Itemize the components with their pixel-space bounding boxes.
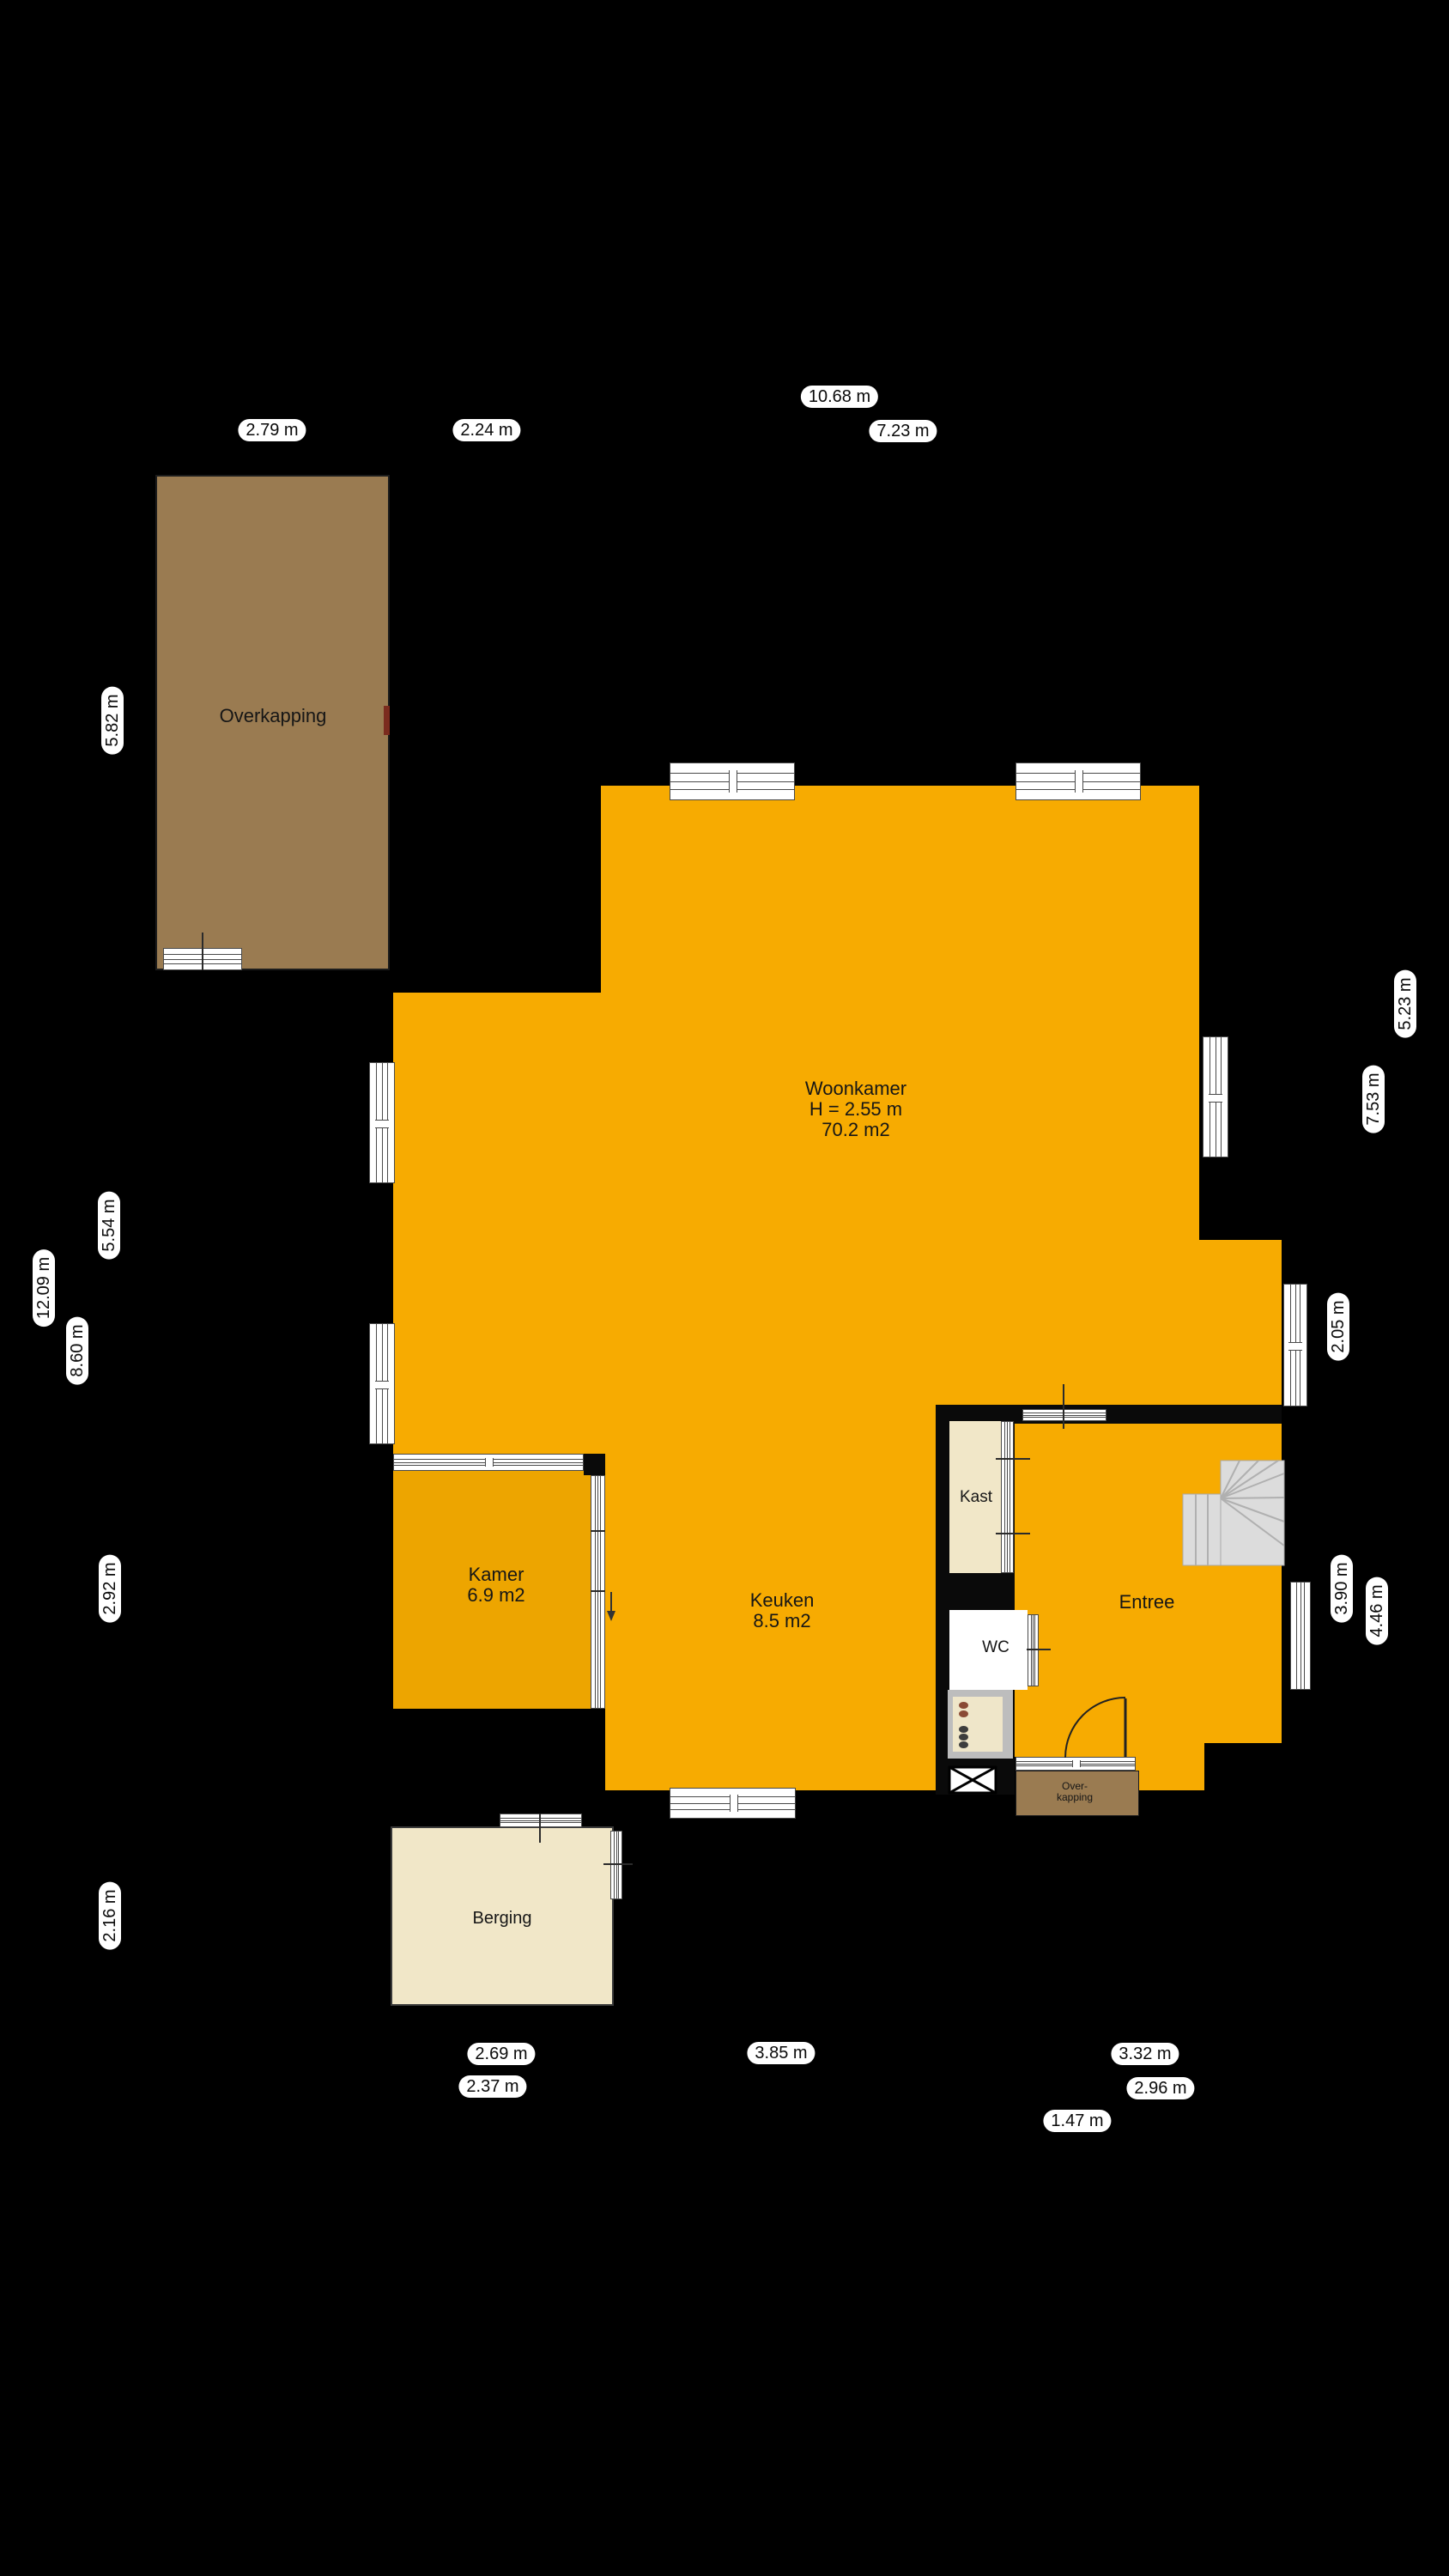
burner-dot bbox=[959, 1702, 968, 1709]
room-area: 6.9 m2 bbox=[467, 1585, 524, 1606]
room-name: Woonkamer bbox=[805, 1078, 906, 1099]
burner-dot bbox=[959, 1726, 968, 1733]
window bbox=[1290, 1582, 1311, 1690]
window bbox=[369, 1323, 395, 1444]
dimension-label: 4.46 m bbox=[1366, 1577, 1388, 1644]
burner-dot bbox=[959, 1710, 968, 1717]
room-label-wc: WC bbox=[982, 1637, 1009, 1658]
window-glass bbox=[595, 1476, 601, 1708]
dimension-label: 2.96 m bbox=[1126, 2077, 1194, 2099]
wc-door bbox=[1028, 1614, 1039, 1686]
dimension-label: 2.05 m bbox=[1327, 1292, 1349, 1360]
wall-tick bbox=[1063, 1384, 1064, 1429]
window-glass bbox=[1004, 1422, 1009, 1572]
window-divider bbox=[1072, 1760, 1081, 1767]
room-label-woonkamer: Woonkamer H = 2.55 m 70.2 m2 bbox=[805, 1078, 906, 1140]
window-glass bbox=[500, 1818, 581, 1824]
dimension-label: 2.24 m bbox=[452, 419, 520, 441]
burner-dot bbox=[959, 1741, 968, 1748]
window-divider bbox=[375, 1120, 390, 1128]
dimension-label: 5.54 m bbox=[98, 1191, 120, 1259]
window-divider bbox=[1288, 1342, 1302, 1351]
window bbox=[670, 1788, 796, 1819]
berging-window bbox=[610, 1831, 622, 1899]
room-entree-floor bbox=[1013, 1743, 1136, 1757]
room-label-keuken: Keuken 8.5 m2 bbox=[750, 1590, 815, 1631]
room-woonkamer-floor bbox=[601, 786, 1199, 993]
room-entree-floor bbox=[1136, 1743, 1204, 1790]
window bbox=[369, 1062, 395, 1183]
room-area: 70.2 m2 bbox=[805, 1120, 906, 1140]
room-height: H = 2.55 m bbox=[805, 1099, 906, 1120]
dimension-label: 3.32 m bbox=[1111, 2043, 1179, 2065]
wall-tick bbox=[996, 1458, 1030, 1460]
wall-tick bbox=[996, 1533, 1030, 1534]
room-label-entrance-canopy: Over- kapping bbox=[1057, 1781, 1093, 1803]
wall-tick bbox=[202, 933, 203, 970]
window bbox=[1283, 1284, 1307, 1406]
dimension-label: 2.92 m bbox=[99, 1554, 121, 1622]
window bbox=[670, 762, 795, 800]
window-divider bbox=[375, 1381, 390, 1389]
canopy-line2: kapping bbox=[1057, 1792, 1093, 1803]
dimension-label: 2.69 m bbox=[467, 2043, 535, 2065]
room-label-kast: Kast bbox=[960, 1487, 992, 1508]
room-woonkamer-floor bbox=[393, 1240, 1282, 1405]
window-divider bbox=[1209, 1094, 1223, 1103]
interior-window bbox=[1022, 1409, 1106, 1421]
window-glass bbox=[1031, 1615, 1035, 1686]
window-glass bbox=[1023, 1413, 1106, 1418]
wall-tick bbox=[1027, 1649, 1051, 1650]
berging-door bbox=[500, 1814, 582, 1827]
window-divider bbox=[729, 770, 737, 792]
room-name: Keuken bbox=[750, 1590, 815, 1611]
door-threshold bbox=[1016, 1757, 1136, 1771]
dimension-label: 2.37 m bbox=[458, 2075, 526, 2098]
room-label-overkapping: Overkapping bbox=[220, 706, 327, 726]
dimension-label: 5.82 m bbox=[101, 686, 124, 754]
wall-tick bbox=[603, 1863, 633, 1865]
wall-tick bbox=[591, 1530, 605, 1532]
window-divider bbox=[730, 1795, 738, 1812]
window bbox=[1203, 1036, 1228, 1157]
room-name: Kamer bbox=[467, 1564, 524, 1585]
wall-corner bbox=[584, 1454, 605, 1475]
dimension-label: 3.85 m bbox=[747, 2042, 815, 2064]
dimension-label: 10.68 m bbox=[801, 386, 878, 408]
dimension-label: 3.90 m bbox=[1331, 1554, 1353, 1622]
dimension-label: 5.23 m bbox=[1394, 969, 1416, 1037]
dimension-label: 1.47 m bbox=[1043, 2110, 1111, 2132]
room-label-kamer: Kamer 6.9 m2 bbox=[467, 1564, 524, 1606]
dimension-label: 8.60 m bbox=[66, 1316, 88, 1384]
dimension-label: 12.09 m bbox=[33, 1249, 55, 1327]
window-divider bbox=[485, 1458, 494, 1467]
dimension-label: 2.79 m bbox=[238, 419, 306, 441]
dimension-label: 7.23 m bbox=[869, 420, 937, 442]
room-label-entree: Entree bbox=[1119, 1592, 1175, 1613]
kast-doors bbox=[1001, 1421, 1014, 1573]
post-marker bbox=[384, 706, 390, 735]
room-area: 8.5 m2 bbox=[750, 1611, 815, 1631]
window-glass bbox=[1296, 1583, 1306, 1689]
room-label-berging: Berging bbox=[473, 1908, 532, 1929]
wall-tick bbox=[539, 1814, 541, 1843]
room-woonkamer-floor bbox=[393, 993, 1199, 1240]
wall-tick bbox=[591, 1590, 605, 1592]
glass-partition bbox=[393, 1454, 584, 1471]
room-entree-floor bbox=[1013, 1424, 1282, 1743]
dimension-label: 2.16 m bbox=[99, 1881, 121, 1949]
room-keuken-floor bbox=[605, 1709, 936, 1790]
window bbox=[1016, 762, 1141, 800]
burner-dot bbox=[959, 1734, 968, 1741]
window-glass bbox=[614, 1832, 619, 1899]
floor-plan: Overkapping Woonkamer H = 2.55 m 70.2 m2… bbox=[0, 0, 1449, 2576]
window-divider bbox=[1075, 770, 1083, 792]
dimension-label: 7.53 m bbox=[1362, 1065, 1385, 1133]
glass-partition bbox=[591, 1475, 605, 1709]
